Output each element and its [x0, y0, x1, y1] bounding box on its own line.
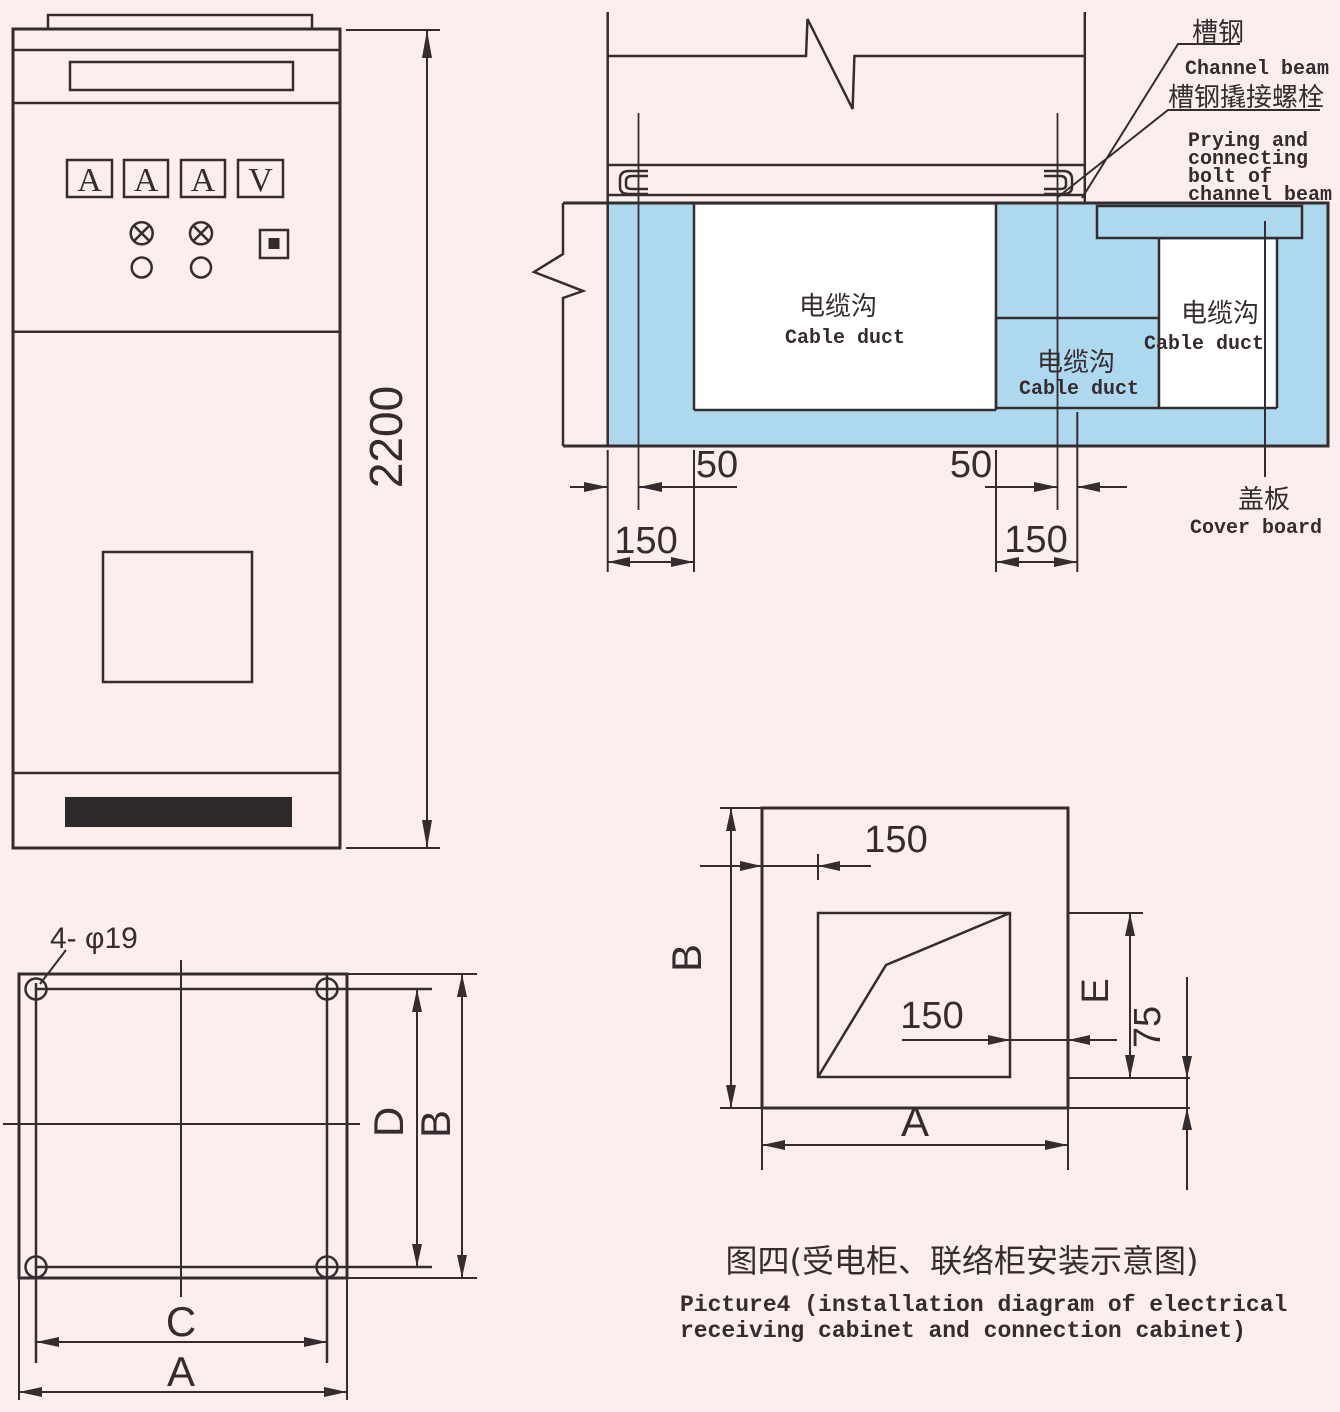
dim-depth-value: B	[663, 944, 710, 972]
dim-outer-depth: B	[412, 974, 467, 1278]
opening-plan-view: 150 150 B E 75 A	[663, 808, 1192, 1190]
ammeter-2-label: A	[134, 162, 159, 199]
dim-right-offset-value: 150	[900, 995, 963, 1037]
dim-outer-depth-value: B	[412, 1110, 459, 1138]
middle-duct-label-cn: 电缆沟	[1037, 348, 1115, 378]
foundation-plan-view: 4- φ19 D B C A	[3, 922, 477, 1400]
dim-margin: 75	[1127, 977, 1192, 1190]
caption-en-line1: Picture4 (installation diagram of electr…	[680, 1292, 1287, 1318]
left-duct-label-cn: 电缆沟	[799, 292, 877, 322]
middle-duct-label-en: Cable duct	[1019, 378, 1139, 401]
dim-left-offset-value: 50	[696, 444, 738, 486]
dims-cross-section-left: 50 150	[570, 444, 738, 572]
dim-opening-depth: E	[1075, 913, 1135, 1078]
right-duct-label-en: Cable duct	[1144, 333, 1264, 356]
round-button-icon	[132, 258, 152, 278]
dim-margin-value: 75	[1127, 1006, 1169, 1048]
dim-inner-width-value: C	[166, 1298, 196, 1345]
slab-break-line	[534, 203, 583, 446]
cabinet-base-and-channel-beam	[608, 12, 1085, 203]
indicator-lamp-icon	[190, 222, 212, 244]
round-button-icon	[191, 258, 211, 278]
caption-cn: 图四(受电柜、联络柜安装示意图)	[726, 1242, 1199, 1280]
right-duct-label-cn: 电缆沟	[1181, 299, 1259, 329]
installation-diagram: A A A V 2200	[0, 0, 1340, 1407]
cabinet-outline	[13, 29, 340, 848]
bolt-label-en-4: channel beam	[1188, 184, 1332, 207]
pushbutton-icon	[260, 230, 288, 258]
extension-and-center-lines	[3, 950, 477, 1400]
cabinet-top-cap	[48, 15, 312, 29]
indicator-lamp-icon	[131, 222, 153, 244]
ammeter-1-label: A	[77, 162, 102, 199]
foundation-outline	[19, 974, 347, 1278]
dim-outer-width-value: A	[167, 1348, 195, 1395]
dim-inner-depth-value: D	[365, 1107, 412, 1137]
dim-top-offset-value: 150	[864, 819, 927, 861]
cabinet-panel-lines	[13, 50, 340, 773]
figure-caption: 图四(受电柜、联络柜安装示意图) Picture4 (installation …	[680, 1242, 1287, 1344]
dim-width-value: A	[901, 1098, 929, 1145]
door-window	[103, 552, 252, 682]
left-duct-label-en: Cable duct	[785, 327, 905, 350]
installation-diagram-page: A A A V 2200	[0, 0, 1340, 1407]
bolt-label-cn: 槽钢撬接螺栓	[1168, 83, 1324, 113]
voltmeter-label: V	[248, 162, 273, 199]
channel-clip-left-icon	[620, 171, 648, 194]
ammeter-3-label: A	[191, 162, 216, 199]
cabinet-break-line	[608, 19, 1085, 109]
dim-cabinet-height: 2200	[346, 30, 440, 848]
caption-en-line2: receiving cabinet and connection cabinet…	[680, 1318, 1246, 1344]
channel-beam-label-en: Channel beam	[1185, 58, 1329, 81]
dim-inner-width: C	[36, 1298, 327, 1347]
cross-section-view: 槽钢 Channel beam 槽钢撬接螺栓 Prying and connec…	[534, 12, 1332, 572]
channel-beam-label-cn: 槽钢	[1192, 18, 1244, 48]
extension-lines	[720, 808, 1190, 1170]
dim-depth: B	[663, 808, 736, 1108]
cabinet-front-view: A A A V 2200	[13, 15, 440, 848]
dim-right-offset-value: 50	[950, 444, 992, 486]
dim-width: A	[762, 1098, 1068, 1150]
cover-board-label-en: Cover board	[1190, 517, 1322, 540]
dim-opening-depth-value: E	[1075, 978, 1117, 1003]
bolt-hole-grid-lines	[36, 974, 432, 1363]
cover-board-label-cn: 盖板	[1238, 485, 1290, 515]
dim-left-width-value: 150	[614, 520, 677, 562]
dim-outer-width: A	[19, 1348, 347, 1397]
dim-right-width-value: 150	[1004, 519, 1067, 561]
ventilation-grille	[65, 797, 292, 827]
dim-cabinet-height-value: 2200	[360, 386, 412, 488]
cabinet-nameplate	[70, 62, 293, 90]
holes-label: 4- φ19	[50, 922, 138, 955]
